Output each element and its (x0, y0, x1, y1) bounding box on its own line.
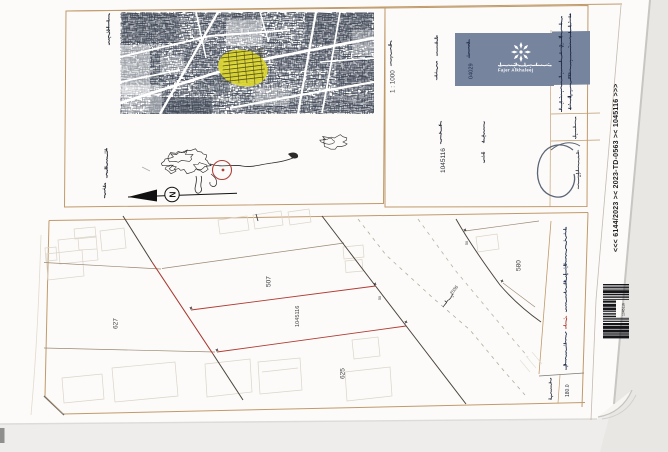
svg-text:625: 625 (340, 368, 347, 379)
svg-text:50: 50 (378, 296, 382, 300)
svg-text:N: N (167, 191, 177, 197)
svg-text:627: 627 (113, 318, 120, 329)
svg-text:580: 580 (516, 260, 523, 271)
svg-text:1 : 1000: 1 : 1000 (390, 70, 397, 93)
svg-text:<<< 6144/2023 >< 2023-TD-05: <<< 6144/2023 >< 2023-TD-0563 >< 1045116… (613, 83, 620, 252)
svg-text:50: 50 (465, 241, 469, 245)
svg-text:Fajer Alkhaleej: Fajer Alkhaleej (498, 68, 533, 73)
svg-text:1045116: 1045116 (440, 148, 447, 173)
svg-text:507: 507 (266, 276, 273, 287)
svg-text:1045116: 1045116 (295, 306, 301, 327)
svg-text:04029: 04029 (469, 63, 475, 79)
svg-text:1045116: 1045116 (622, 303, 626, 316)
svg-text:180.0: 180.0 (565, 384, 571, 397)
